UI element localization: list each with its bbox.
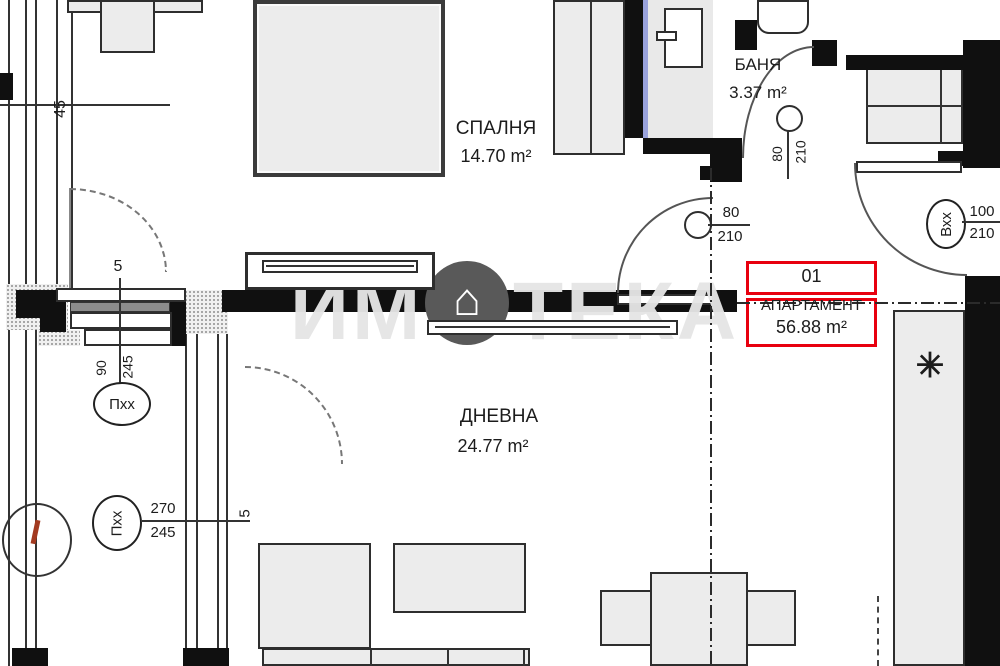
living-window-line-3: [217, 332, 219, 650]
bath-jamb-left: [735, 20, 757, 50]
wall-bedroom-right: [625, 0, 643, 138]
win-upper-code: Пхх: [109, 396, 135, 413]
wardrobe-divider: [590, 2, 592, 153]
dining-chair-right: [740, 590, 796, 646]
win-upper-height: 245: [117, 347, 139, 387]
window-sill-box: [84, 329, 172, 346]
bedroom-name: СПАЛНЯ: [446, 118, 546, 140]
freezer-icon: ✳: [910, 346, 950, 386]
wardrobe: [553, 0, 625, 155]
washing-machine-line-h: [866, 105, 963, 107]
window-frame-outer: [56, 288, 186, 302]
sofa-divider-1: [370, 650, 372, 666]
entry-door-code: Вхх: [938, 212, 955, 237]
bathroom-area: 3.37 m²: [718, 83, 798, 103]
bath-door-height: 210: [779, 144, 823, 160]
dim-45: 45: [46, 92, 76, 126]
wall-bath-right: [963, 40, 1000, 168]
bathroom-name: БАНЯ: [723, 55, 793, 75]
entry-door-height: 210: [964, 225, 1000, 242]
dining-table: [650, 572, 748, 666]
win-upper-height-text: 245: [120, 355, 136, 378]
dining-chair-left: [600, 590, 656, 646]
dim-line-45: [0, 104, 170, 106]
living-window-line-2: [196, 332, 198, 650]
living-window-line-1: [185, 332, 187, 650]
win-lower-code-bubble: Пхх: [92, 495, 142, 551]
sofa-corner: [258, 543, 371, 649]
apartment-number: 01: [746, 266, 877, 287]
win-upper-code-bubble: Пхх: [93, 382, 151, 426]
balcony-column-marker: [2, 503, 72, 577]
living-name: ДНЕВНА: [449, 406, 549, 428]
wall-living-left-bottom: [183, 648, 229, 666]
entry-door-code-bubble: Вхх: [926, 199, 966, 249]
hatch-living-left: [180, 290, 228, 334]
sofa-divider-2: [447, 650, 449, 666]
win-lower-leader: [142, 520, 250, 522]
dim-45-text: 45: [52, 100, 70, 118]
bedroom-door-jamb: [700, 166, 740, 180]
kitchen-dashed-line: [877, 596, 879, 666]
entry-door-handle: [656, 31, 677, 41]
window-frame-lower: [70, 312, 172, 329]
wall-hall-top: [643, 138, 717, 154]
house-icon: ⌂: [453, 276, 481, 322]
hatch-window-left: [38, 330, 80, 346]
toilet: [757, 0, 809, 34]
bedroom-door-leaf: [617, 294, 714, 305]
glazing-strip: [643, 0, 648, 138]
wall-left-top-block: [0, 73, 13, 100]
bath-door-symbol: [776, 105, 803, 132]
living-dashed-swing: [245, 366, 343, 464]
entry-door-fraction-line: [962, 221, 1000, 223]
apartment-label: АПАРТАМЕНТ: [748, 297, 875, 314]
washing-machine-line-v: [940, 67, 942, 144]
wall-bath-top: [846, 55, 965, 70]
wall-left-bottom-block: [12, 648, 48, 666]
win-upper-width: 90: [91, 351, 111, 385]
living-area: 24.77 m²: [443, 436, 543, 457]
win-lower-width: 270: [144, 500, 182, 517]
win-upper-width-text: 90: [93, 360, 109, 376]
vanity-stool: [100, 0, 155, 53]
dim-5-window: 5: [108, 258, 128, 276]
win-lower-height: 245: [144, 524, 182, 541]
bedroom-door-height: 210: [708, 228, 752, 245]
wall-right-lower: [965, 276, 1000, 666]
axis-line-vertical: [710, 168, 712, 666]
bedroom-area: 14.70 m²: [446, 146, 546, 167]
floor-plan: 45 5 90 245 Пхх Пхх 270: [0, 0, 1000, 666]
bedroom-wall-line-1: [56, 0, 58, 292]
win-lower-code: Пхх: [109, 510, 126, 536]
bedroom-dresser-line: [266, 265, 414, 267]
bed: [253, 0, 445, 177]
apartment-area: 56.88 m²: [746, 317, 877, 338]
sofa-divider-3: [523, 650, 525, 666]
sofa-seats: [262, 648, 530, 666]
entry-door-width: 100: [964, 203, 1000, 220]
bath-door-height-text: 210: [793, 140, 809, 163]
win-lower-mark-text: 5: [237, 509, 254, 517]
bedroom-door-width: 80: [712, 204, 750, 221]
bath-jamb-right: [812, 40, 837, 66]
bedroom-door-fraction-line: [708, 224, 750, 226]
coffee-table: [393, 543, 526, 613]
win-lower-mark: 5: [236, 504, 254, 522]
living-window-line-4: [226, 332, 228, 650]
living-sideboard-line: [435, 326, 670, 328]
